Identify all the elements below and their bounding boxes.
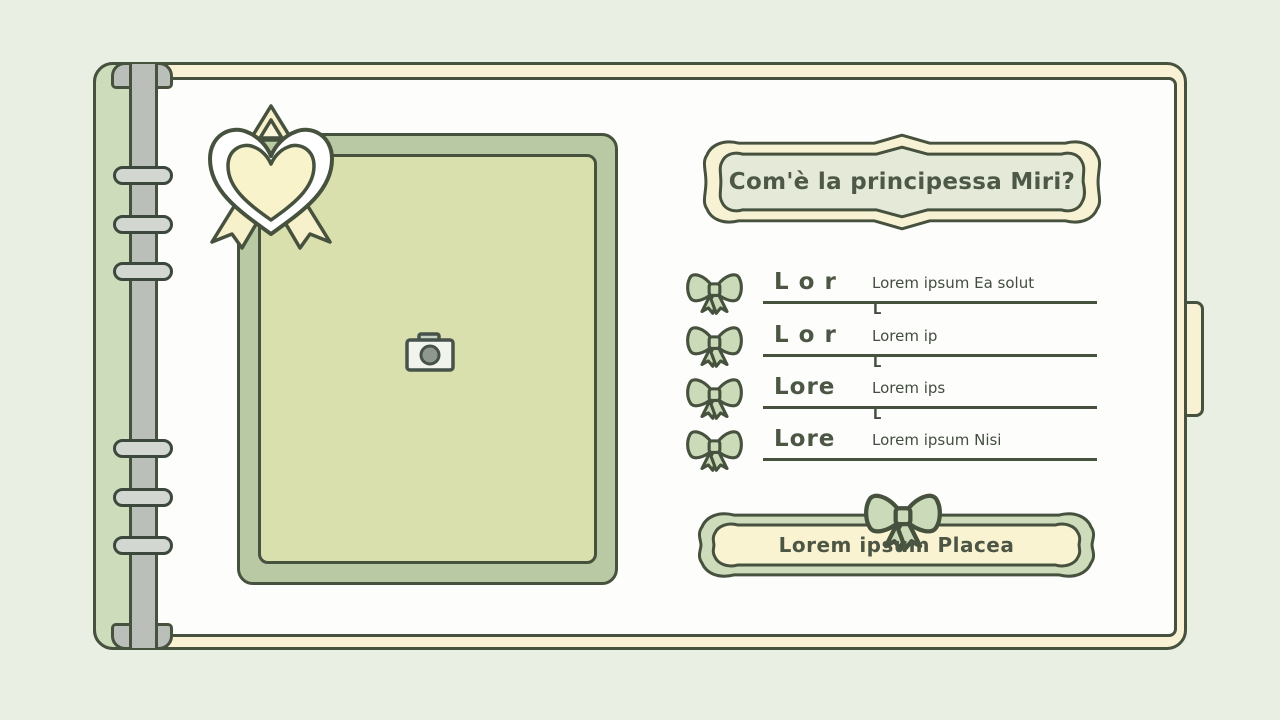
binder-ring bbox=[113, 488, 173, 507]
row-label: Lore bbox=[774, 374, 835, 400]
binder-bar bbox=[129, 64, 158, 648]
row-input-line[interactable] bbox=[763, 458, 1097, 469]
bookmark-tab[interactable] bbox=[1184, 301, 1204, 417]
question-banner-title: Com'è la principessa Miri? bbox=[693, 130, 1111, 234]
row-tail-text: L bbox=[873, 303, 881, 318]
binder-ring bbox=[113, 215, 173, 234]
row-tail-text: L bbox=[873, 356, 881, 371]
binder-ring bbox=[113, 439, 173, 458]
row-label: Lore bbox=[774, 426, 835, 452]
form-row: L o r Lorem ip L bbox=[686, 318, 1106, 372]
row-value: Lorem ipsum Ea solut bbox=[872, 274, 1034, 292]
form-row: L o r Lorem ipsum Ea solut L bbox=[686, 265, 1106, 319]
binder-ring bbox=[113, 536, 173, 555]
form-row: Lore Lorem ipsum Nisi bbox=[686, 422, 1106, 476]
confirm-button-label: Lorem ipsum Placea bbox=[686, 533, 1107, 557]
form-row: Lore Lorem ips L bbox=[686, 370, 1106, 424]
row-label: L o r bbox=[774, 322, 837, 348]
confirm-button[interactable]: Lorem ipsum Placea bbox=[686, 503, 1107, 587]
row-value: Lorem ipsum Nisi bbox=[872, 431, 1001, 449]
row-tail-text: L bbox=[873, 408, 881, 423]
binder-ring bbox=[113, 166, 173, 185]
row-input-line[interactable] bbox=[763, 354, 1097, 365]
bow-icon bbox=[686, 266, 743, 316]
row-label: L o r bbox=[774, 269, 837, 295]
bow-icon bbox=[686, 423, 743, 473]
row-input-line[interactable] bbox=[763, 406, 1097, 417]
row-value: Lorem ips bbox=[872, 379, 945, 397]
camera-icon bbox=[404, 330, 456, 374]
binder-ring bbox=[113, 262, 173, 281]
bow-icon bbox=[686, 319, 743, 369]
row-input-line[interactable] bbox=[763, 301, 1097, 312]
row-value: Lorem ip bbox=[872, 327, 937, 345]
notebook-spine bbox=[93, 62, 134, 650]
scrapbook-screen: Com'è la principessa Miri? L o r Lorem i… bbox=[0, 0, 1280, 720]
bow-icon bbox=[686, 371, 743, 421]
question-banner: Com'è la principessa Miri? bbox=[693, 130, 1111, 234]
heart-ribbon-badge-icon bbox=[198, 96, 344, 254]
